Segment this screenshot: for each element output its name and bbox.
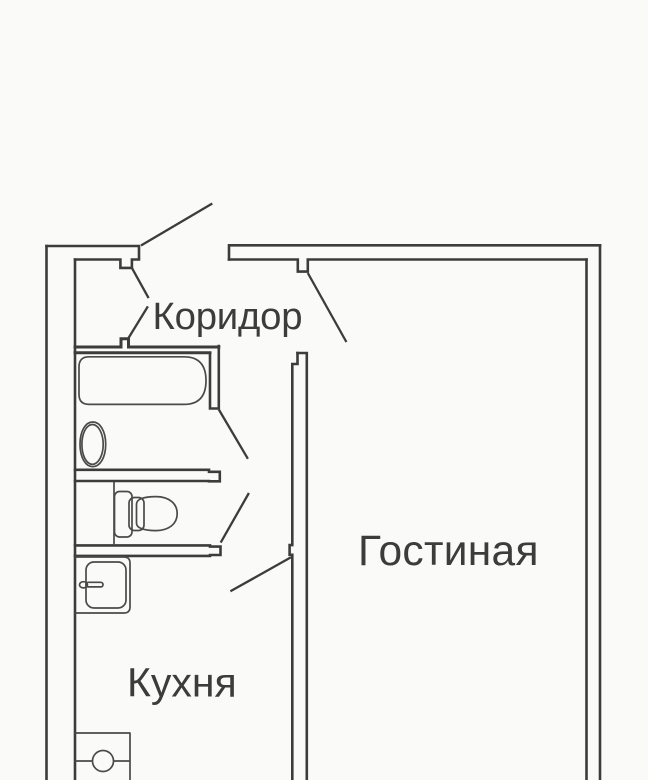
svg-text:Кухня: Кухня [127,660,237,706]
svg-text:Гостиная: Гостиная [358,528,539,575]
svg-text:Коридор: Коридор [153,295,303,338]
